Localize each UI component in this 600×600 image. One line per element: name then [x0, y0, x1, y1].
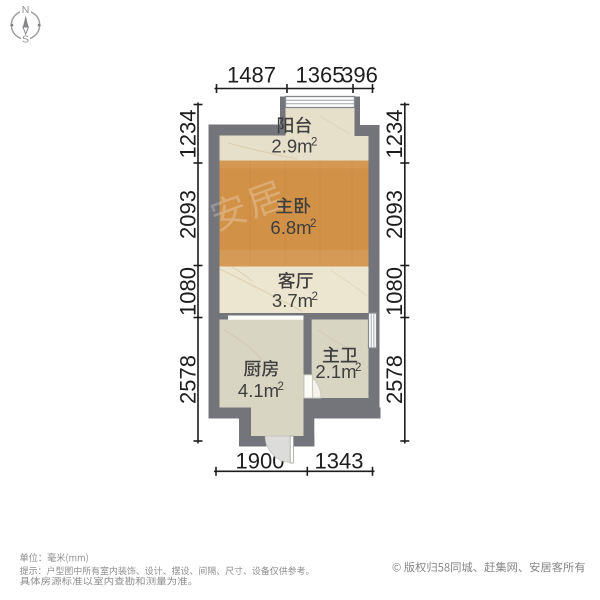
svg-text:2578: 2578	[382, 355, 407, 404]
svg-text:S: S	[22, 34, 29, 46]
svg-text:N: N	[22, 4, 30, 16]
svg-text:396: 396	[341, 63, 378, 88]
svg-text:2.9m: 2.9m	[271, 136, 312, 157]
svg-text:4.1m: 4.1m	[238, 380, 279, 401]
svg-text:1487: 1487	[227, 63, 276, 88]
svg-text:2: 2	[355, 362, 361, 374]
svg-text:2093: 2093	[176, 190, 201, 239]
svg-text:1234: 1234	[176, 110, 201, 159]
svg-text:1365: 1365	[296, 63, 345, 88]
svg-text:3.7m: 3.7m	[272, 290, 313, 311]
svg-text:6.8m: 6.8m	[270, 217, 311, 238]
svg-text:2: 2	[278, 381, 284, 393]
svg-text:2.1m: 2.1m	[315, 361, 356, 382]
svg-text:1080: 1080	[382, 267, 407, 316]
svg-text:1234: 1234	[382, 110, 407, 159]
svg-text:2578: 2578	[176, 355, 201, 404]
svg-text:2: 2	[310, 218, 316, 230]
svg-text:1343: 1343	[315, 448, 364, 473]
svg-text:1080: 1080	[176, 267, 201, 316]
svg-text:2: 2	[311, 137, 317, 149]
svg-text:2: 2	[312, 291, 318, 303]
svg-text:2093: 2093	[382, 190, 407, 239]
